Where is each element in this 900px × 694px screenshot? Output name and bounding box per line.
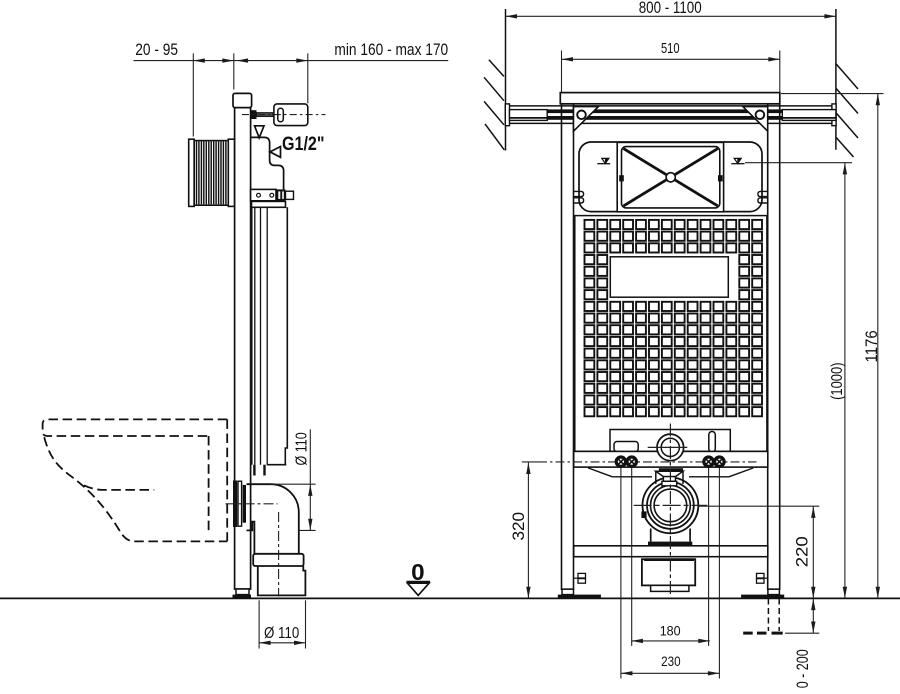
svg-text:0 - 200: 0 - 200 [793, 649, 812, 688]
svg-text:20 - 95: 20 - 95 [135, 40, 178, 59]
svg-text:320: 320 [509, 512, 528, 541]
svg-text:G1/2": G1/2" [282, 134, 325, 155]
svg-text:Ø 110: Ø 110 [264, 625, 299, 642]
svg-text:(1000): (1000) [829, 363, 846, 400]
svg-text:220: 220 [793, 536, 812, 567]
svg-text:180: 180 [660, 623, 681, 639]
svg-text:Ø 110: Ø 110 [294, 432, 311, 465]
svg-text:230: 230 [661, 653, 681, 669]
svg-text:800 - 1100: 800 - 1100 [639, 0, 702, 17]
svg-text:min 160 - max 170: min 160 - max 170 [334, 40, 448, 59]
svg-text:510: 510 [661, 40, 680, 57]
